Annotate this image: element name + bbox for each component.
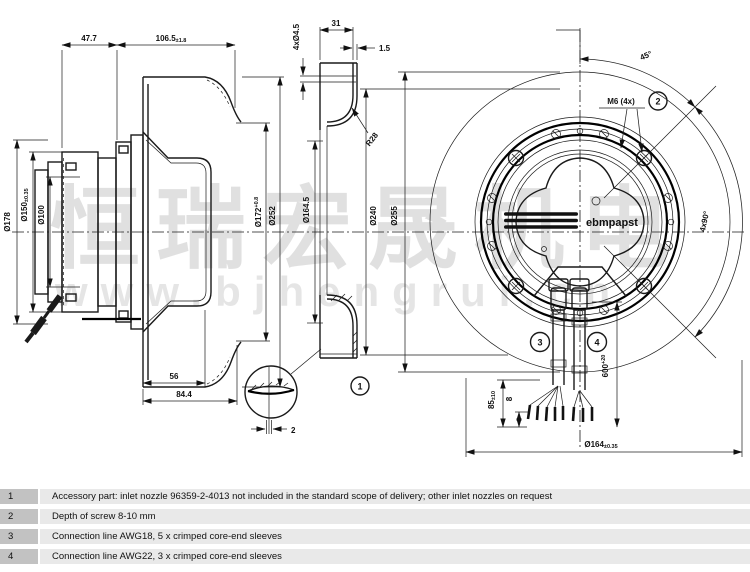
dim-164-5: Ø164.5 [302,196,311,223]
power-cable [26,296,60,342]
note-number: 3 [0,529,38,544]
note-number: 2 [0,509,38,524]
table-row: 3 Connection line AWG18, 5 x crimped cor… [0,529,750,544]
front-view-dimensions [466,28,742,457]
dim-150: Ø150±0.35 [20,188,30,221]
table-row: 4 Connection line AWG22, 3 x crimped cor… [0,549,750,564]
svg-text:1: 1 [357,382,362,392]
dim-178: Ø178 [3,212,12,232]
rotor-details: ebmpapst [504,197,638,296]
ebmpapst-logo: ebmpapst [586,217,638,229]
side-view-dimensions [13,27,560,405]
table-row: 1 Accessory part: inlet nozzle 96359-2-4… [0,489,750,504]
dim-4x4-5: 4xØ4.5 [292,23,301,50]
note-text: Depth of screw 8-10 mm [40,509,750,524]
dim-47-7: 47.7 [81,34,97,43]
dim-100: Ø100 [37,205,46,225]
dim-252: Ø252 [268,206,277,226]
dim-255: Ø255 [390,206,399,226]
notes-table: 1 Accessory part: inlet nozzle 96359-2-4… [0,489,750,569]
dim-600: 600+20 [601,355,610,378]
svg-text:4: 4 [594,338,599,348]
callout-4: 4 [588,333,607,352]
callouts: 1 2 3 4 [351,92,667,395]
dim-45deg: 45° [639,49,654,62]
fan-technical-drawing: ebmpapst [0,0,750,482]
table-row: 2 Depth of screw 8-10 mm [0,509,750,524]
dim-8: 8 [505,396,514,401]
note-number: 4 [0,549,38,564]
center-lines [12,30,744,448]
callout-2: 2 [649,92,667,110]
dim-r28: R28 [364,130,380,148]
callout-1: 1 [351,377,369,395]
note-text: Connection line AWG22, 3 x crimped core-… [40,549,750,564]
note-number: 1 [0,489,38,504]
dim-2: 2 [291,426,296,435]
side-view [13,27,560,434]
dim-106-5: 106.5±1.8 [156,34,187,44]
note-text: Accessory part: inlet nozzle 96359-2-401… [40,489,750,504]
dim-240: Ø240 [369,206,378,226]
dim-172: Ø172+0.8 [254,197,263,227]
dim-4x90: 4x90° [698,210,711,232]
detail-circle [245,349,321,434]
callout-3: 3 [531,333,550,352]
front-view: ebmpapst [430,28,742,457]
dim-56: 56 [170,372,179,381]
dim-1-5: 1.5 [379,44,391,53]
svg-text:3: 3 [537,338,542,348]
svg-text:2: 2 [655,97,660,107]
wires-awg22 [573,391,592,422]
dim-84-4: 84.4 [176,390,192,399]
wires-awg18 [528,386,563,421]
dim-m6-4x: M6 (4x) [607,97,635,106]
dim-31: 31 [332,19,341,28]
dim-164: Ø164±0.35 [584,440,617,450]
dim-85: 85±10 [487,391,497,409]
note-text: Connection line AWG18, 5 x crimped core-… [40,529,750,544]
